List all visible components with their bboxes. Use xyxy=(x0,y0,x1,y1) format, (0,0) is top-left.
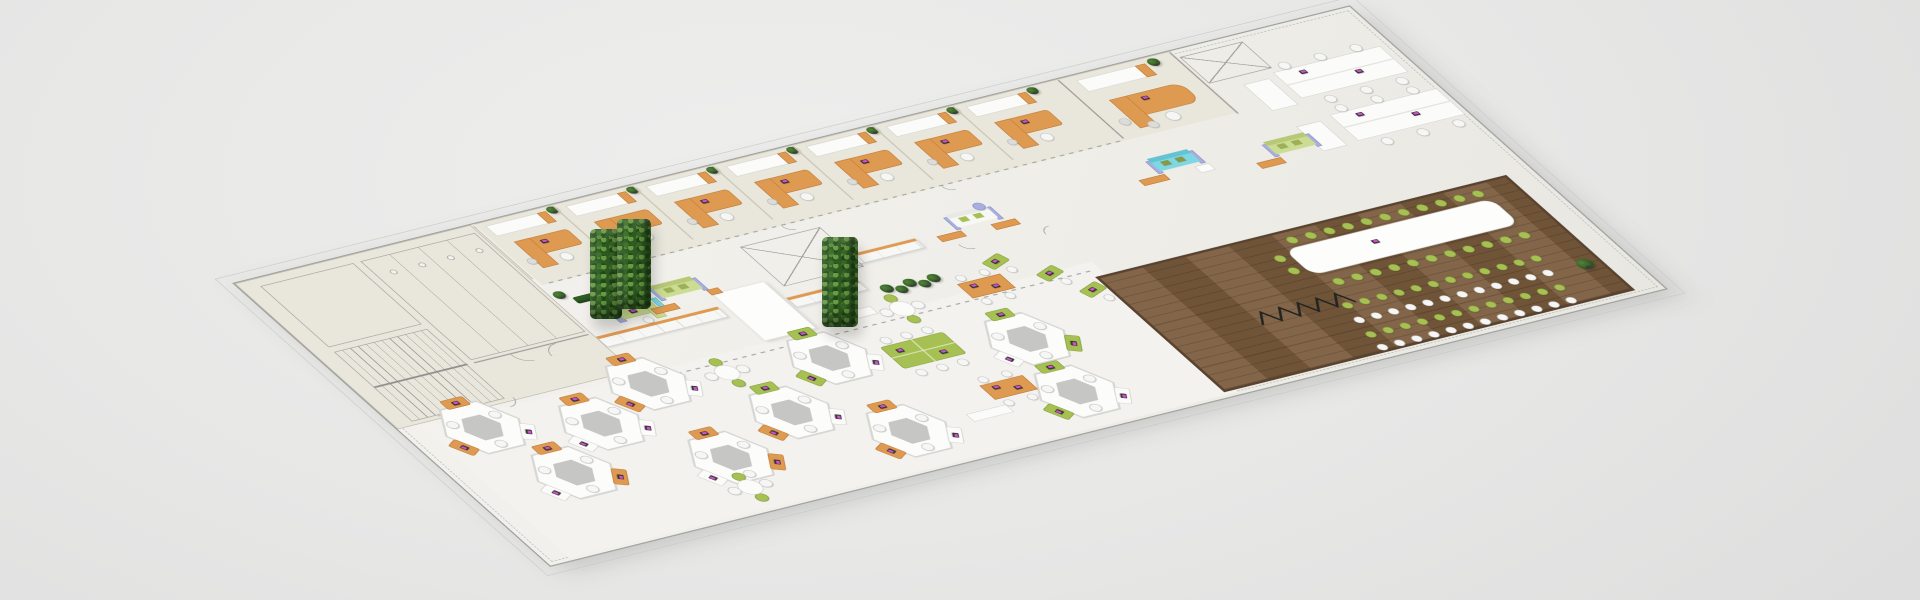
task-chair xyxy=(913,368,930,377)
task-chair xyxy=(934,363,951,372)
task-chair xyxy=(1058,277,1074,286)
green-wall-column xyxy=(617,219,651,309)
fixture xyxy=(417,262,428,268)
laptop xyxy=(774,459,781,464)
coffee-bench xyxy=(937,231,968,243)
laptop xyxy=(1120,393,1127,398)
task-chair xyxy=(557,251,577,261)
stair-rail xyxy=(373,363,467,387)
task-chair xyxy=(1321,94,1340,104)
green-wall-column xyxy=(822,237,858,327)
task-chair xyxy=(797,191,817,201)
laptop xyxy=(645,426,652,431)
fixture xyxy=(388,269,399,275)
laptop xyxy=(617,474,624,479)
office-floorplan-render xyxy=(0,0,1920,600)
fixture xyxy=(445,255,456,261)
task-chair xyxy=(717,211,737,221)
task-chair xyxy=(1393,76,1412,86)
task-chair xyxy=(1378,136,1397,146)
coffee-bench xyxy=(1256,157,1287,169)
task-chair xyxy=(1101,293,1117,302)
laptop xyxy=(1070,341,1077,346)
door-arc xyxy=(1038,226,1055,235)
door-arc xyxy=(781,224,796,232)
task-chair xyxy=(1004,265,1020,274)
task-chair xyxy=(957,152,977,162)
stool xyxy=(640,316,656,324)
ottoman xyxy=(1194,163,1216,173)
task-chair xyxy=(1037,132,1057,142)
laptop xyxy=(691,386,698,391)
task-chair xyxy=(877,172,897,182)
task-chair xyxy=(1450,118,1469,128)
sofa-cyan xyxy=(1143,148,1209,177)
laptop xyxy=(873,360,880,365)
task-chair xyxy=(1357,85,1376,95)
task-chair xyxy=(954,358,971,367)
coffee-bench xyxy=(1139,174,1171,186)
floor-plate xyxy=(232,5,1668,567)
fixture xyxy=(474,248,485,254)
laptop xyxy=(952,433,959,438)
laptop xyxy=(525,429,532,434)
door-arc xyxy=(941,184,956,192)
door-arc xyxy=(958,242,975,251)
task-chair xyxy=(1414,127,1433,137)
